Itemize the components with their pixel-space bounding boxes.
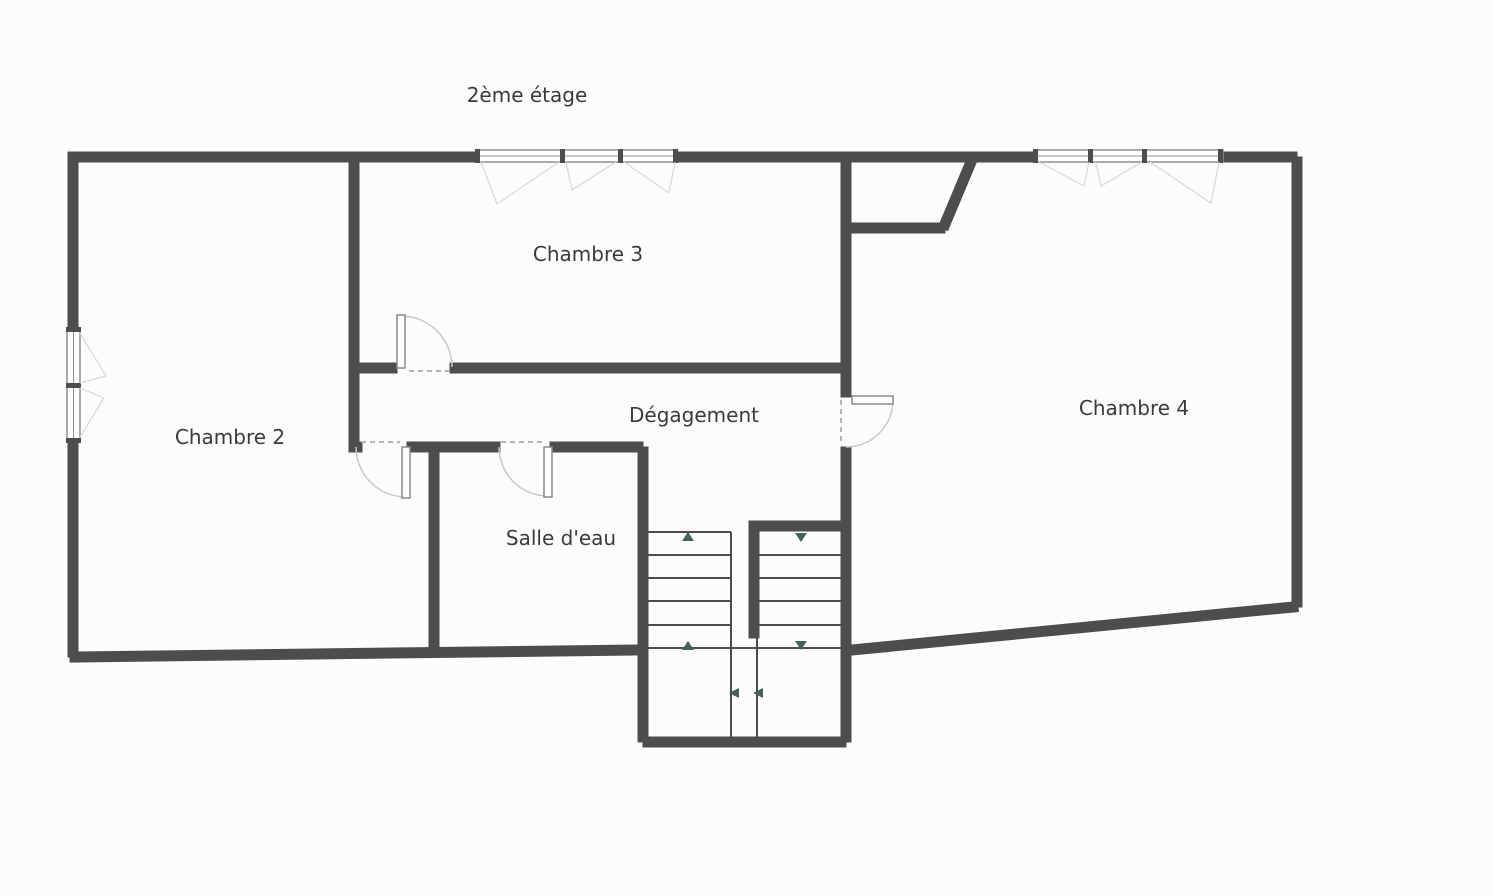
floor-title: 2ème étage — [467, 83, 588, 107]
stair-steps-up-flight — [648, 532, 731, 625]
window-chambre-4 — [1033, 149, 1223, 203]
staircase — [648, 532, 841, 741]
walls — [73, 157, 1297, 742]
room-label-salle-deau: Salle d'eau — [506, 526, 616, 550]
door-chambre-4 — [841, 396, 893, 447]
stair-up-arrow — [682, 532, 694, 541]
stair-landing-lines — [648, 532, 841, 741]
room-label-degagement: Dégagement — [629, 403, 759, 427]
floor-plan-canvas: 2ème étage Chambre 2 Chambre 3 Chambre 4… — [0, 0, 1493, 896]
stair-up-arrow — [682, 641, 694, 650]
stair-steps-down-flight — [759, 555, 841, 625]
room-label-chambre-2: Chambre 2 — [175, 425, 285, 449]
window-chambre-2 — [66, 327, 106, 443]
room-label-chambre-4: Chambre 4 — [1079, 396, 1189, 420]
window-chambre-3 — [475, 149, 678, 204]
door-salle-deau — [499, 442, 552, 497]
door-chambre-3 — [397, 315, 452, 371]
door-chambre-2 — [356, 442, 410, 498]
room-label-chambre-3: Chambre 3 — [533, 242, 643, 266]
stair-down-arrow — [795, 533, 807, 542]
floor-plan: 2ème étage Chambre 2 Chambre 3 Chambre 4… — [0, 0, 1493, 896]
